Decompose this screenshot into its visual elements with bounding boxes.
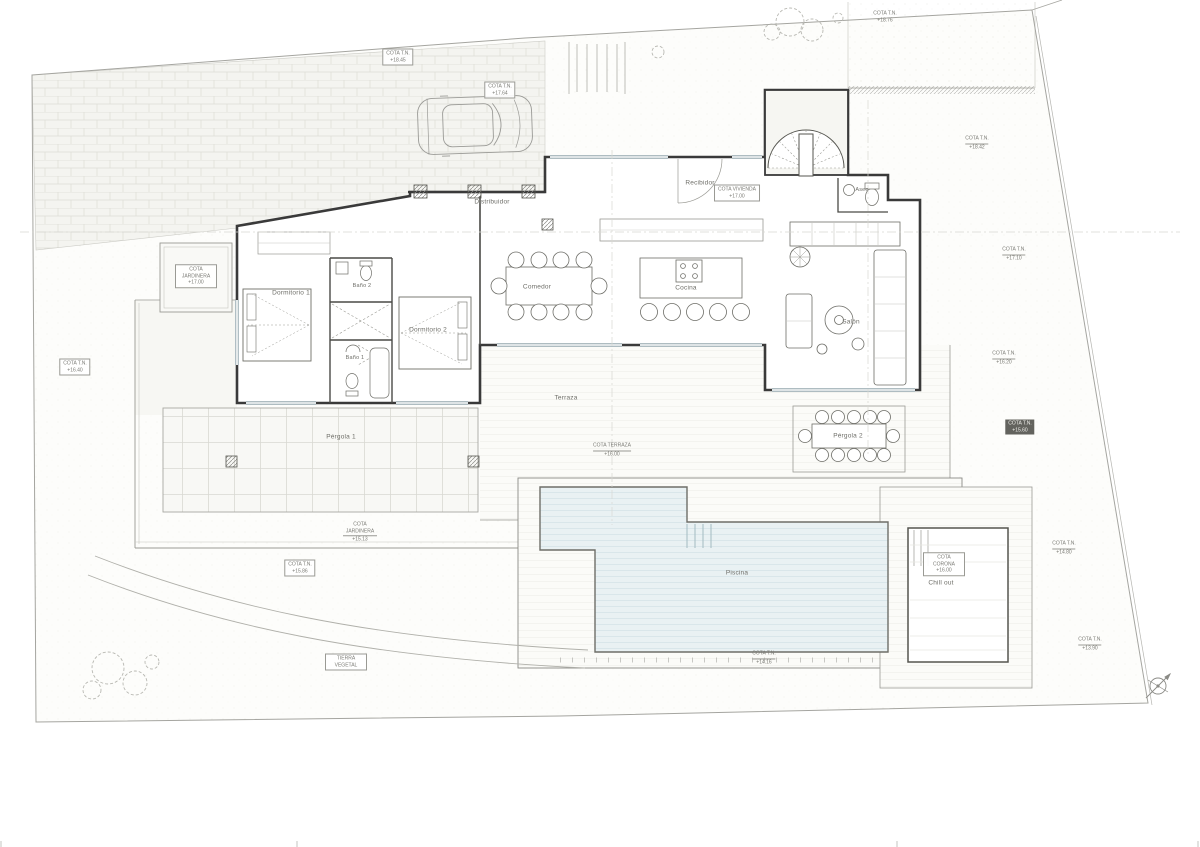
level-annotation: COTA T.N.+17.64 — [484, 82, 515, 99]
north-arrow-icon — [1146, 674, 1170, 698]
level-annotation: COTA T.N.+14.80 — [1052, 541, 1075, 556]
level-annotation: COTA VIVIENDA+17.00 — [714, 185, 760, 202]
room-label-cocina: Cocina — [675, 285, 696, 292]
chillout-deck — [880, 487, 1032, 688]
level-annotation: TIERRA VEGETAL — [325, 654, 367, 671]
room-label-dormitorio1: Dormitorio 1 — [272, 290, 310, 297]
level-annotation: COTA JARDINERA+17.00 — [175, 264, 217, 288]
room-label-comedor: Comedor — [523, 284, 551, 291]
level-annotation: COTA T.N.+18.45 — [382, 49, 413, 66]
level-annotation: COTA JARDINERA+15.13 — [343, 521, 377, 543]
entry-steps — [569, 42, 625, 94]
room-label-bano1: Baño 1 — [346, 355, 365, 361]
room-label-piscina: Piscina — [726, 570, 748, 577]
pergola1-canopy — [163, 408, 478, 512]
room-label-bano2: Baño 2 — [353, 283, 372, 289]
room-label-dormitorio2: Dormitorio 2 — [409, 327, 447, 334]
fold-marks — [1, 841, 1198, 847]
room-label-terraza: Terraza — [554, 395, 577, 402]
level-annotation: COTA T.N.+16.20 — [992, 351, 1015, 366]
level-annotation: COTA CORONA+16.00 — [923, 552, 965, 576]
level-annotation: COTA TERRAZA+16.00 — [593, 443, 631, 458]
room-label-recibidor: Recibidor — [685, 180, 714, 187]
floor-plan-canvas: Recibidor Distribuidor Comedor Cocina Sa… — [0, 0, 1200, 847]
level-annotation: COTA T.N.+18.76 — [873, 11, 896, 24]
room-label-pergola2: Pérgola 2 — [833, 433, 863, 440]
level-annotation: COTA T.N.+15.60 — [1005, 420, 1034, 435]
level-annotation: COTA T.N.+16.40 — [59, 359, 90, 376]
room-label-salon: Salón — [842, 319, 860, 326]
room-label-distribuidor: Distribuidor — [474, 199, 509, 206]
level-annotation: COTA T.N.+13.90 — [1078, 637, 1101, 652]
room-label-chillout: Chill out — [928, 580, 953, 587]
level-annotation: COTA T.N.+17.10 — [1002, 247, 1025, 262]
bed-dormitorio1 — [243, 289, 311, 361]
level-annotation: COTA T.N.+15.86 — [284, 560, 315, 577]
level-annotation: COTA T.N.+18.42 — [965, 136, 988, 151]
room-label-aseo: Aseo — [855, 187, 868, 193]
fan-staircase-icon — [765, 90, 848, 176]
room-label-pergola1: Pérgola 1 — [326, 434, 356, 441]
level-annotation: COTA T.N.+14.16 — [752, 651, 775, 666]
